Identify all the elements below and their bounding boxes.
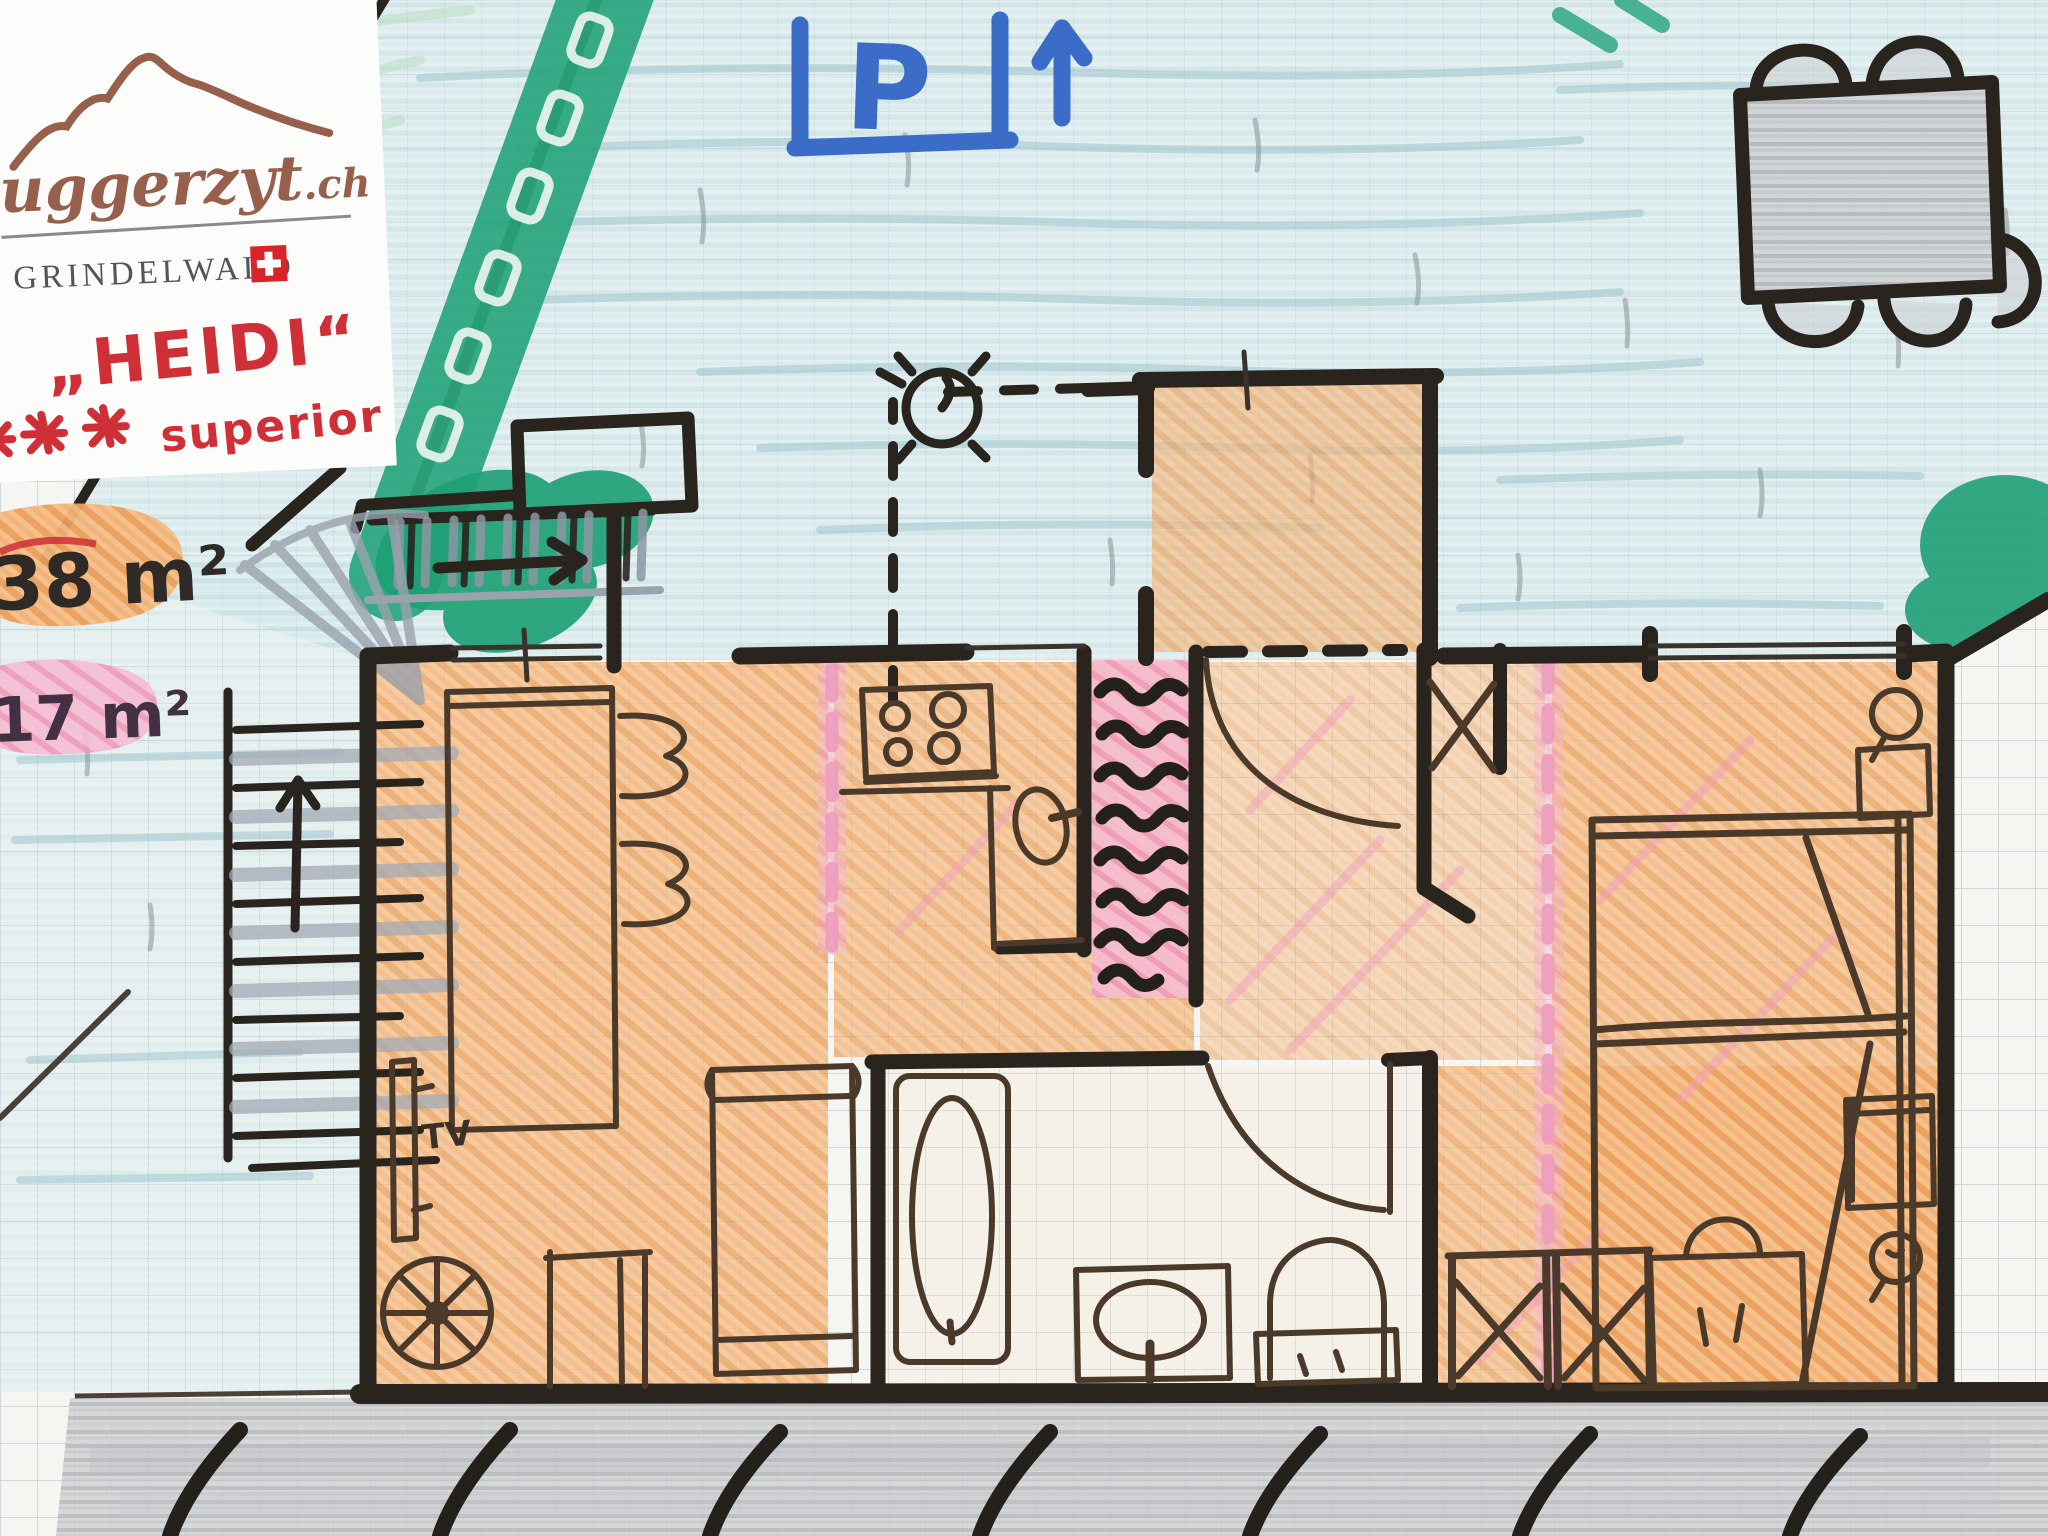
living-room-floor xyxy=(376,662,828,1385)
spinning-wheel-icon xyxy=(383,1259,491,1367)
terrace-strip xyxy=(56,1392,2048,1536)
table-top xyxy=(1740,82,2000,298)
area-apartment: 38 m² xyxy=(0,530,232,628)
swiss-flag-icon xyxy=(250,245,288,283)
floor-plan-scan: P uggerzyt.ch GRINDELWALD „HEIDI“ superi… xyxy=(0,0,2048,1536)
logo-label: uggerzyt.ch GRINDELWALD „HEIDI“ superior xyxy=(0,0,397,484)
area-second: 17 m² xyxy=(0,677,193,757)
balcony-floor xyxy=(1152,384,1428,652)
bathroom-floor xyxy=(884,1066,1426,1386)
parking-letter: P xyxy=(843,18,934,159)
floor-plan-drawing: P uggerzyt.ch GRINDELWALD „HEIDI“ superi… xyxy=(0,0,2048,1536)
wall-bottom xyxy=(360,1392,2048,1394)
tv-label: TV xyxy=(420,1113,474,1158)
